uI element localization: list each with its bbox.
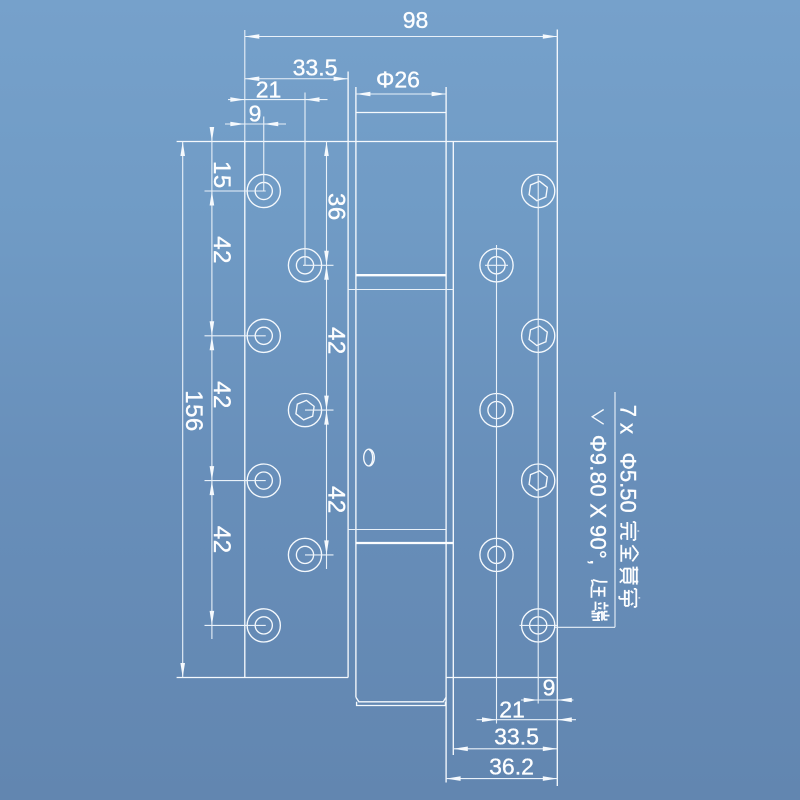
svg-text:21: 21 <box>256 77 282 103</box>
svg-text:36.2: 36.2 <box>489 754 534 780</box>
svg-text:36: 36 <box>323 193 350 221</box>
svg-text:21: 21 <box>499 697 525 723</box>
svg-text:42: 42 <box>323 327 350 355</box>
svg-text:7 x Φ5.50: 7 x Φ5.50 <box>615 405 640 513</box>
svg-text:15: 15 <box>208 161 235 189</box>
svg-text:42: 42 <box>208 381 235 409</box>
svg-text:42: 42 <box>208 526 235 554</box>
svg-text:9: 9 <box>543 675 556 701</box>
svg-text:33.5: 33.5 <box>494 724 539 750</box>
svg-text:9: 9 <box>249 101 262 127</box>
svg-text:156: 156 <box>180 390 207 432</box>
svg-text:Φ26: Φ26 <box>376 67 420 93</box>
svg-text:42: 42 <box>208 236 235 264</box>
svg-text:Φ9.80 X 90°,: Φ9.80 X 90°, <box>586 435 611 566</box>
svg-text:33.5: 33.5 <box>293 55 338 81</box>
svg-text:98: 98 <box>403 7 429 33</box>
svg-text:42: 42 <box>323 486 350 514</box>
